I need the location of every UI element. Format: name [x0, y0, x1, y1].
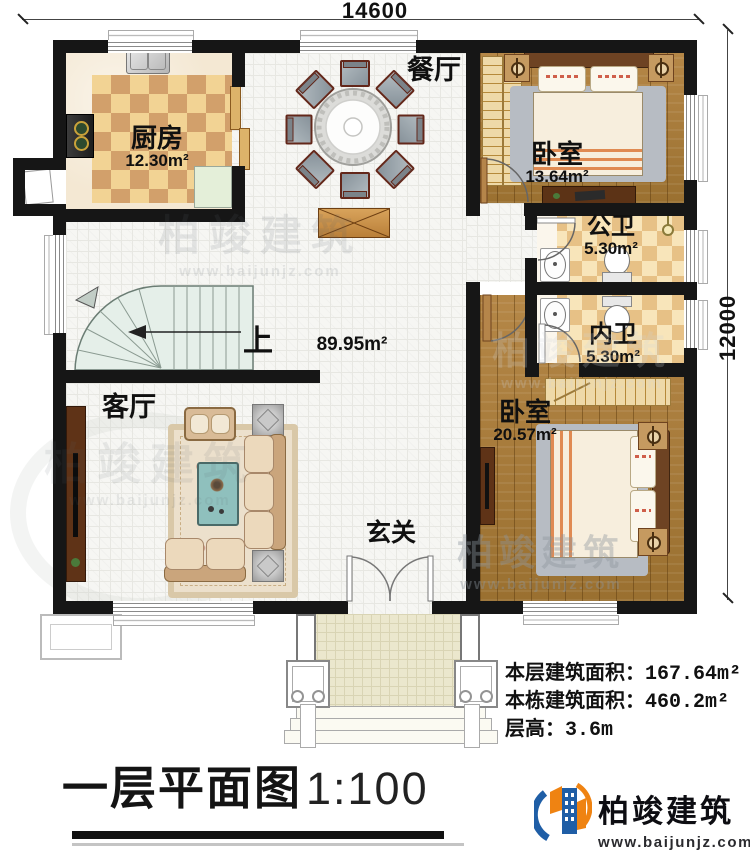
- living-sofa-small: [164, 538, 246, 582]
- bedroom2-nightstand: [638, 422, 668, 450]
- drawing-title: 一层平面图 1:100: [62, 752, 429, 818]
- window-sill: [698, 95, 708, 182]
- window-sill: [698, 230, 708, 284]
- window-living-bottom: [113, 601, 253, 614]
- entrance-double-door: [344, 553, 436, 603]
- bedroom1-area: 13.64m²: [507, 168, 607, 185]
- bedroom2-tv-cabinet: [480, 447, 495, 525]
- info-value: 3.6m: [565, 719, 613, 742]
- info-line-storey-height: 层高： 3.6m: [505, 712, 613, 742]
- window-kitchen-top: [108, 40, 192, 53]
- dining-chair: [340, 172, 370, 199]
- info-line-floor-area: 本层建筑面积： 167.64m²: [505, 656, 741, 686]
- living-tv-cabinet: [66, 406, 86, 582]
- kitchen-sliding-door-panel: [230, 86, 241, 130]
- window-sill: [523, 615, 619, 625]
- dining-chair: [286, 115, 313, 145]
- dimension-width-label: 14600: [330, 0, 420, 24]
- porch-stub-wall: [296, 614, 316, 666]
- brand-logo-icon: [534, 780, 592, 844]
- dimension-tick: [722, 592, 733, 603]
- sideboard: [318, 208, 390, 238]
- bedroom2-duvet: [550, 430, 638, 558]
- window-bedroom2-bottom: [523, 601, 617, 614]
- dining-chair: [340, 60, 370, 87]
- wall-divider-lower: [466, 282, 480, 614]
- living-sofa-main: [244, 434, 286, 550]
- window-bedroom1-right: [684, 95, 697, 180]
- porch-rail: [464, 704, 480, 748]
- wall-kitchen-right-upper: [232, 40, 245, 87]
- kitchen-stove: [66, 114, 94, 158]
- window-dining-top: [300, 40, 416, 53]
- info-label: 本栋建筑面积：: [505, 684, 645, 713]
- living-lamp-table: [252, 550, 284, 582]
- drawing-title-text: 一层平面图: [62, 752, 302, 818]
- living-armchair: [184, 407, 236, 441]
- bedroom1-pillow: [590, 66, 638, 92]
- dining-chair: [398, 115, 425, 145]
- info-line-building-area: 本栋建筑面积： 460.2m²: [505, 684, 729, 714]
- porch-rail: [300, 704, 316, 748]
- porch-column: [286, 660, 330, 708]
- side-entry-door: [22, 169, 53, 206]
- dimension-height-label: 12000: [715, 301, 741, 361]
- public-bath-label: 公卫: [561, 215, 661, 239]
- porch-column: [454, 660, 498, 708]
- kitchen-sliding-door-panel: [239, 128, 250, 170]
- public-bath-pull-light: [662, 224, 674, 236]
- living-lamp-table: [252, 404, 284, 436]
- wall-public-bath-left-lower: [525, 258, 537, 282]
- living-coffee-table: [197, 462, 239, 526]
- bedroom1-label: 卧室: [507, 141, 607, 167]
- info-label: 本层建筑面积：: [505, 656, 645, 685]
- bedroom1-pillow: [538, 66, 586, 92]
- window-public-bath-right: [684, 230, 697, 282]
- title-underline: [72, 831, 444, 839]
- porch-stub-wall: [460, 614, 480, 666]
- brand-site: www.baijunjz.com: [598, 834, 750, 851]
- living-label: 客厅: [79, 394, 179, 421]
- bedroom2-area: 20.57m²: [475, 426, 575, 443]
- foyer-label: 玄关: [341, 521, 441, 546]
- brand-block: 柏竣建筑 www.baijunjz.com: [598, 786, 750, 851]
- stair-entry-arrow: [76, 287, 98, 308]
- info-value: 167.64m²: [645, 663, 741, 686]
- wall-private-bath-bottom-stub: [525, 363, 539, 377]
- public-bath-area: 5.30m²: [561, 240, 661, 257]
- private-bath-area: 5.30m²: [563, 348, 663, 365]
- wall-bath-divider: [525, 282, 697, 295]
- floor-plan-page: 厨房 12.30m² 餐厅 卧室 13.64m² 公卫 5.30m² 内卫 5.…: [0, 0, 750, 855]
- private-bath-label: 内卫: [563, 323, 663, 347]
- bedroom1-nightstand: [504, 54, 530, 82]
- window-private-bath-right: [684, 300, 697, 348]
- drawing-scale: 1:100: [306, 763, 429, 815]
- wall-under-stairs: [53, 370, 320, 383]
- stairs-up-label: 上: [240, 327, 276, 357]
- dining-label: 餐厅: [384, 57, 484, 84]
- bedroom2-nightstand: [638, 528, 668, 556]
- kitchen-area: 12.30m²: [107, 152, 207, 169]
- wall-exterior-left-upper: [53, 40, 66, 165]
- wall-public-bath-left-upper: [525, 216, 537, 230]
- window-stairs-left: [53, 235, 66, 333]
- porch-floor: [308, 614, 472, 706]
- wall-kitchen-bottom: [53, 209, 245, 222]
- hall-area-label: 89.95m²: [300, 335, 404, 354]
- info-label: 层高：: [505, 712, 565, 741]
- info-value: 460.2m²: [645, 691, 729, 714]
- kitchen-fridge: [194, 166, 232, 208]
- wall-kitchen-right-lower: [232, 166, 245, 222]
- window-sill: [698, 300, 708, 350]
- title-underline-light: [72, 843, 464, 846]
- bedroom2-label: 卧室: [475, 399, 575, 425]
- dimension-tick: [722, 23, 733, 34]
- side-stoop: [40, 614, 122, 660]
- brand-name: 柏竣建筑: [598, 786, 750, 831]
- window-sill: [113, 615, 255, 626]
- bedroom1-nightstand: [648, 54, 674, 82]
- wall-private-bath-left: [525, 295, 537, 363]
- kitchen-label: 厨房: [107, 125, 207, 151]
- staircase: [66, 284, 256, 372]
